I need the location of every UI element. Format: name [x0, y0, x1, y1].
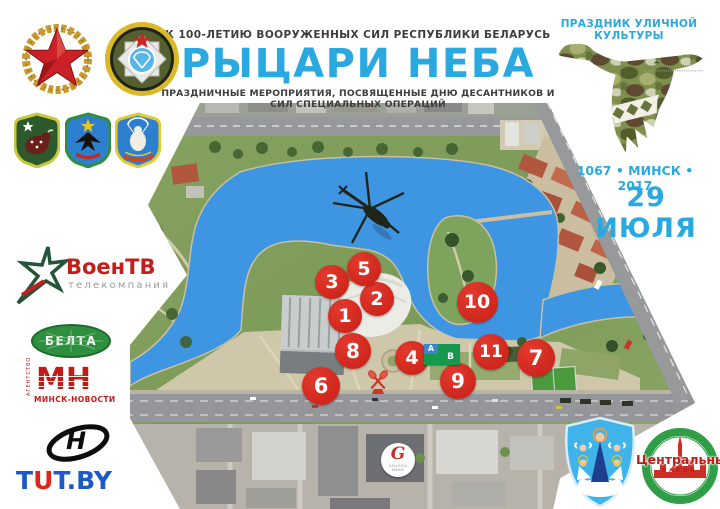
voentv-star-icon [8, 243, 70, 309]
mn-agency-label: АГЕНТСТВО [26, 357, 32, 396]
header-subtitle: ПРАЗДНИЧНЫЕ МЕРОПРИЯТИЯ, ПОСВЯЩЕННЫЕ ДНЮ… [150, 88, 566, 110]
camouflage-stork-icon [551, 34, 715, 164]
central-district-label: РАЙОН [652, 468, 708, 474]
mn-subtitle: МИНСК-НОВОСТИ [34, 395, 116, 404]
minsk-coat-of-arms-icon [561, 416, 639, 508]
voentv-tagline: телекомпания [68, 280, 170, 291]
voentv-name: ВоенТВ [66, 255, 156, 279]
sports-palace [280, 295, 347, 375]
tutby-u: U [33, 466, 53, 495]
n-logo-letter: Н [66, 427, 86, 455]
belta-logo: БЕЛТА [31, 324, 111, 358]
tutby-t2: T [53, 466, 66, 495]
patch-bison-icon [14, 112, 60, 168]
mn-stripes-decor [36, 372, 92, 390]
sof-emblem-icon [103, 20, 181, 98]
central-district-name: Центральный [636, 452, 720, 467]
event-poster: 1234567891011 А В G GALLERIA MINSK К 100… [0, 0, 720, 509]
mn-logo: АГЕНТСТВО МН МИНСК-НОВОСТИ [28, 366, 128, 406]
patch-bird-parachute-icon [115, 112, 161, 168]
tutby-t1: T [16, 466, 33, 495]
central-district-ring-icon [640, 426, 720, 508]
army-emblem-icon [18, 18, 96, 96]
patch-eagle-icon [65, 112, 111, 168]
event-date: 29 ИЮЛЯ [576, 182, 716, 244]
tutby-logo: TUT.BY [16, 466, 112, 495]
tutby-tail: .BY [67, 466, 112, 495]
page-title: РЫЦАРИ НЕБА [150, 41, 566, 87]
header-kicker: К 100-ЛЕТИЮ ВООРУЖЕННЫХ СИЛ РЕСПУБЛИКИ Б… [150, 29, 566, 41]
